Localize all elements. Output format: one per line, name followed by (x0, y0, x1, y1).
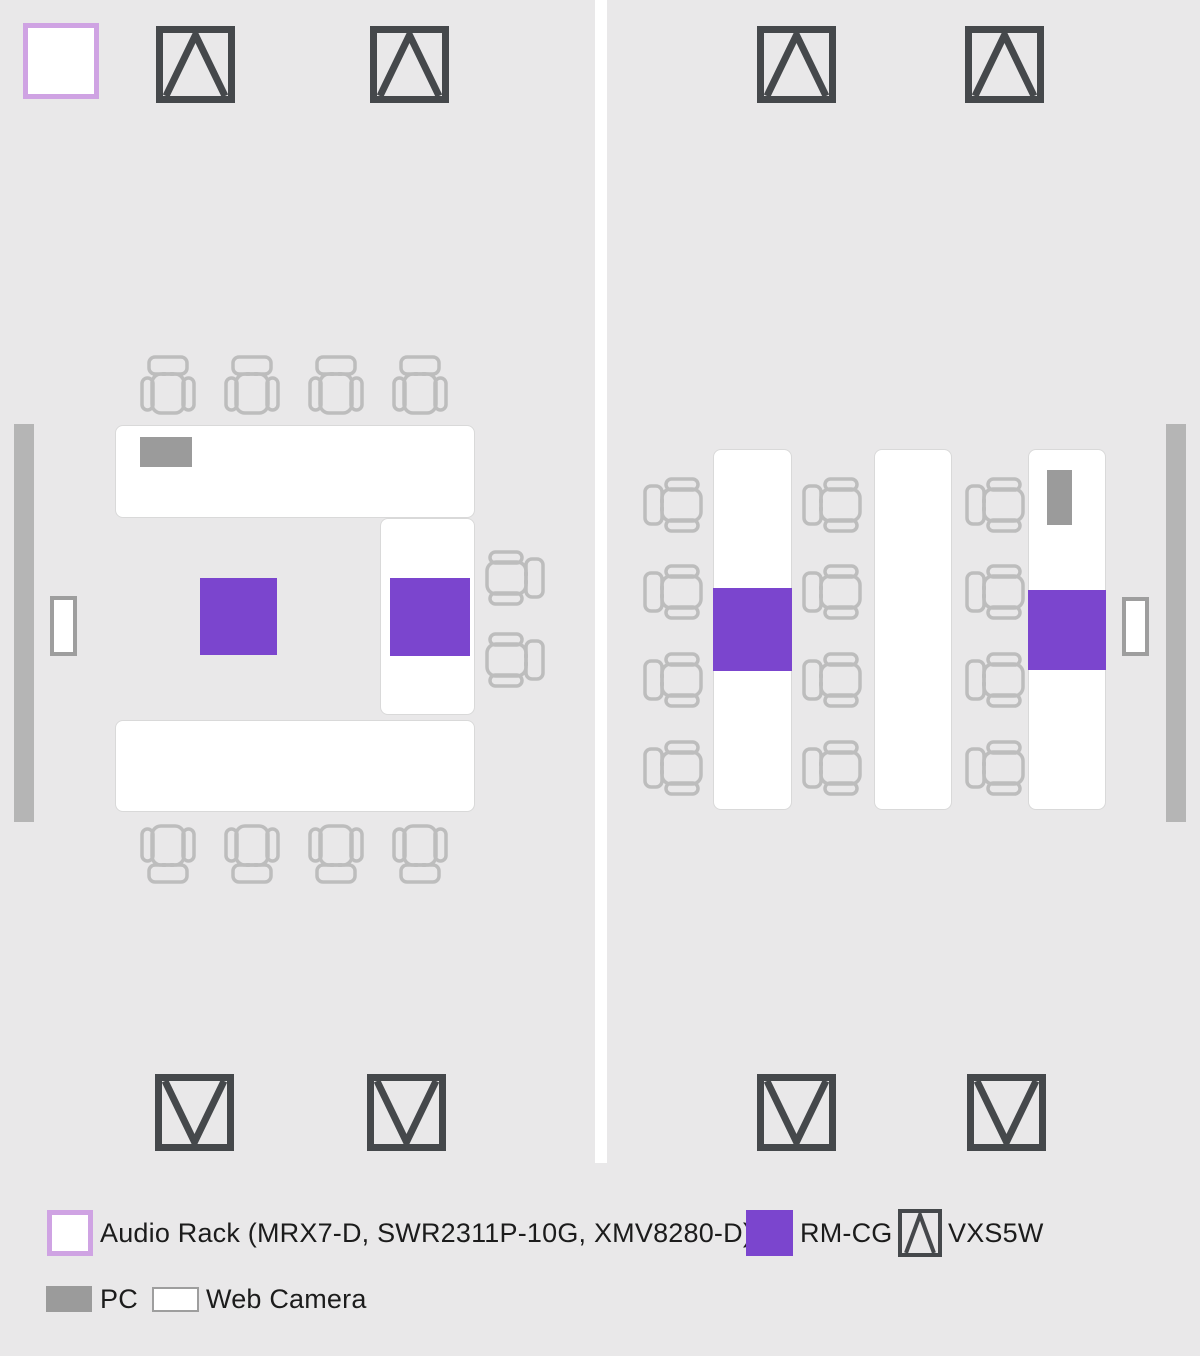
chair (802, 477, 866, 533)
legend-label-pc: PC (100, 1286, 138, 1313)
chair (643, 477, 707, 533)
vxs5w-speaker (367, 1074, 446, 1151)
table (115, 720, 475, 812)
chair (481, 632, 545, 688)
legend-item-rm-cg: RM-CG (746, 1208, 892, 1258)
vxs5w-speaker (967, 1074, 1046, 1151)
legend-label-rm-cg: RM-CG (800, 1220, 892, 1247)
legend-label-audio-rack: Audio Rack (MRX7-D, SWR2311P-10G, XMV828… (100, 1220, 752, 1247)
web-camera-swatch-icon (152, 1287, 199, 1312)
rm-cg-microphone (713, 588, 792, 671)
vxs5w-speaker (757, 1074, 836, 1151)
chair (965, 564, 1029, 620)
audio-rack-swatch-icon (47, 1210, 93, 1256)
legend-label-web-camera: Web Camera (206, 1286, 367, 1313)
vxs5w-speaker (757, 26, 836, 103)
audio-rack (23, 23, 99, 99)
wall-display-left (14, 424, 34, 822)
wall-display-right (1166, 424, 1186, 822)
rm-cg-microphone (200, 578, 277, 655)
vxs5w-speaker (965, 26, 1044, 103)
chair (802, 740, 866, 796)
chair (802, 564, 866, 620)
pc (1047, 470, 1072, 525)
chair (643, 740, 707, 796)
chair (481, 550, 545, 606)
chair (224, 820, 280, 884)
chair (802, 652, 866, 708)
chair (308, 355, 364, 419)
rm-cg-microphone (1028, 590, 1106, 670)
legend-item-web-camera: Web Camera (152, 1284, 367, 1314)
pc (140, 437, 192, 467)
chair (965, 652, 1029, 708)
vxs5w-speaker (370, 26, 449, 103)
floor-plan-canvas: Audio Rack (MRX7-D, SWR2311P-10G, XMV828… (0, 0, 1200, 1356)
chair (140, 355, 196, 419)
vxs5w-speaker (155, 1074, 234, 1151)
legend-item-vxs5w: VXS5W (898, 1208, 1044, 1258)
table (874, 449, 952, 810)
web-camera-right (1122, 597, 1149, 656)
pc-swatch-icon (46, 1286, 92, 1312)
chair (643, 652, 707, 708)
chair (965, 477, 1029, 533)
chair (392, 355, 448, 419)
vxs5w-speaker-icon (898, 1209, 942, 1257)
chair (392, 820, 448, 884)
web-camera-left (50, 596, 77, 656)
room-divider-wall (595, 0, 607, 1163)
rm-cg-swatch-icon (746, 1210, 793, 1256)
chair (224, 355, 280, 419)
vxs5w-speaker (156, 26, 235, 103)
rm-cg-microphone (390, 578, 470, 656)
legend-item-audio-rack: Audio Rack (MRX7-D, SWR2311P-10G, XMV828… (47, 1208, 752, 1258)
chair (643, 564, 707, 620)
legend-item-pc: PC (46, 1284, 138, 1314)
chair (140, 820, 196, 884)
chair (965, 740, 1029, 796)
chair (308, 820, 364, 884)
legend-label-vxs5w: VXS5W (948, 1220, 1044, 1247)
